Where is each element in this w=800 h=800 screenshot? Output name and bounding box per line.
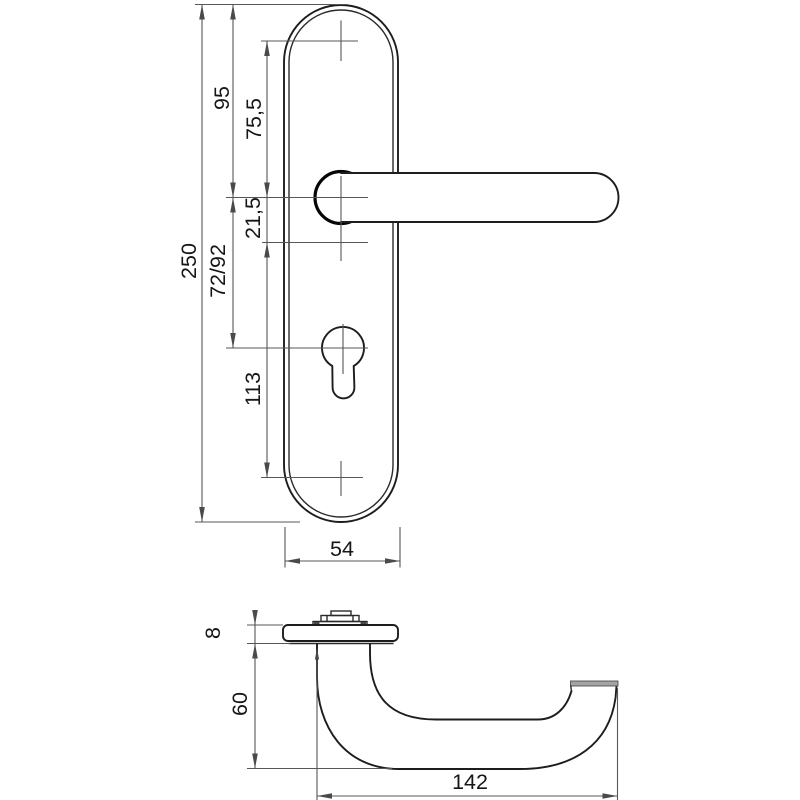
- dim-label-95: 95: [210, 86, 234, 110]
- technical-drawing-svg: 95 75,5 21,5 250 72/92 113 54: [0, 0, 800, 800]
- dim-label-54: 54: [330, 537, 354, 561]
- backplate-inner-contour: [289, 10, 393, 517]
- arrow-54-right: [385, 558, 400, 564]
- arrow-113-bottom: [264, 463, 270, 478]
- arrow-95-top: [230, 5, 236, 20]
- arrow-142-right: [603, 793, 618, 799]
- lever-end-face: [571, 681, 619, 686]
- arrow-7292-top: [230, 198, 236, 213]
- arrow-142-left: [317, 793, 332, 799]
- dim-label-8: 8: [201, 627, 225, 639]
- dim-label-250: 250: [177, 243, 201, 279]
- dim-label-75-5: 75,5: [242, 98, 266, 140]
- arrow-113-top: [264, 243, 270, 258]
- drawing-canvas: 95 75,5 21,5 250 72/92 113 54: [0, 0, 800, 800]
- lever-side-inner-contour: [370, 644, 572, 720]
- side-view: [283, 611, 618, 769]
- lever-end-notch: [571, 686, 572, 691]
- dim-label-142: 142: [452, 770, 488, 794]
- arrow-60-bottom: [252, 754, 258, 769]
- arrow-755-top: [264, 41, 270, 56]
- dim-label-113: 113: [241, 372, 265, 406]
- side-view-dimensions: 8 60 142: [201, 610, 618, 800]
- arrow-54-left: [285, 558, 300, 564]
- lever-side-outer-contour: [317, 644, 617, 769]
- neck-reference-arrow: [315, 648, 319, 660]
- dim-label-21-5: 21,5: [241, 197, 265, 239]
- spindle-hub-ticks: [327, 616, 353, 621]
- rose-side-profile: [283, 625, 398, 641]
- arrow-7292-bottom: [230, 333, 236, 348]
- arrow-250-top: [199, 5, 205, 20]
- dim-label-72-92: 72/92: [206, 244, 230, 298]
- front-view: [284, 5, 618, 522]
- dim-label-60: 60: [228, 692, 252, 716]
- arrow-8-top: [252, 610, 258, 625]
- arrow-60-top: [252, 644, 258, 659]
- arrow-250-bottom: [199, 507, 205, 522]
- arrow-95-bottom: [230, 183, 236, 198]
- lever-handle-fill: [341, 173, 617, 223]
- backplate-outer-contour: [284, 5, 398, 522]
- arrow-755-bottom: [264, 183, 270, 198]
